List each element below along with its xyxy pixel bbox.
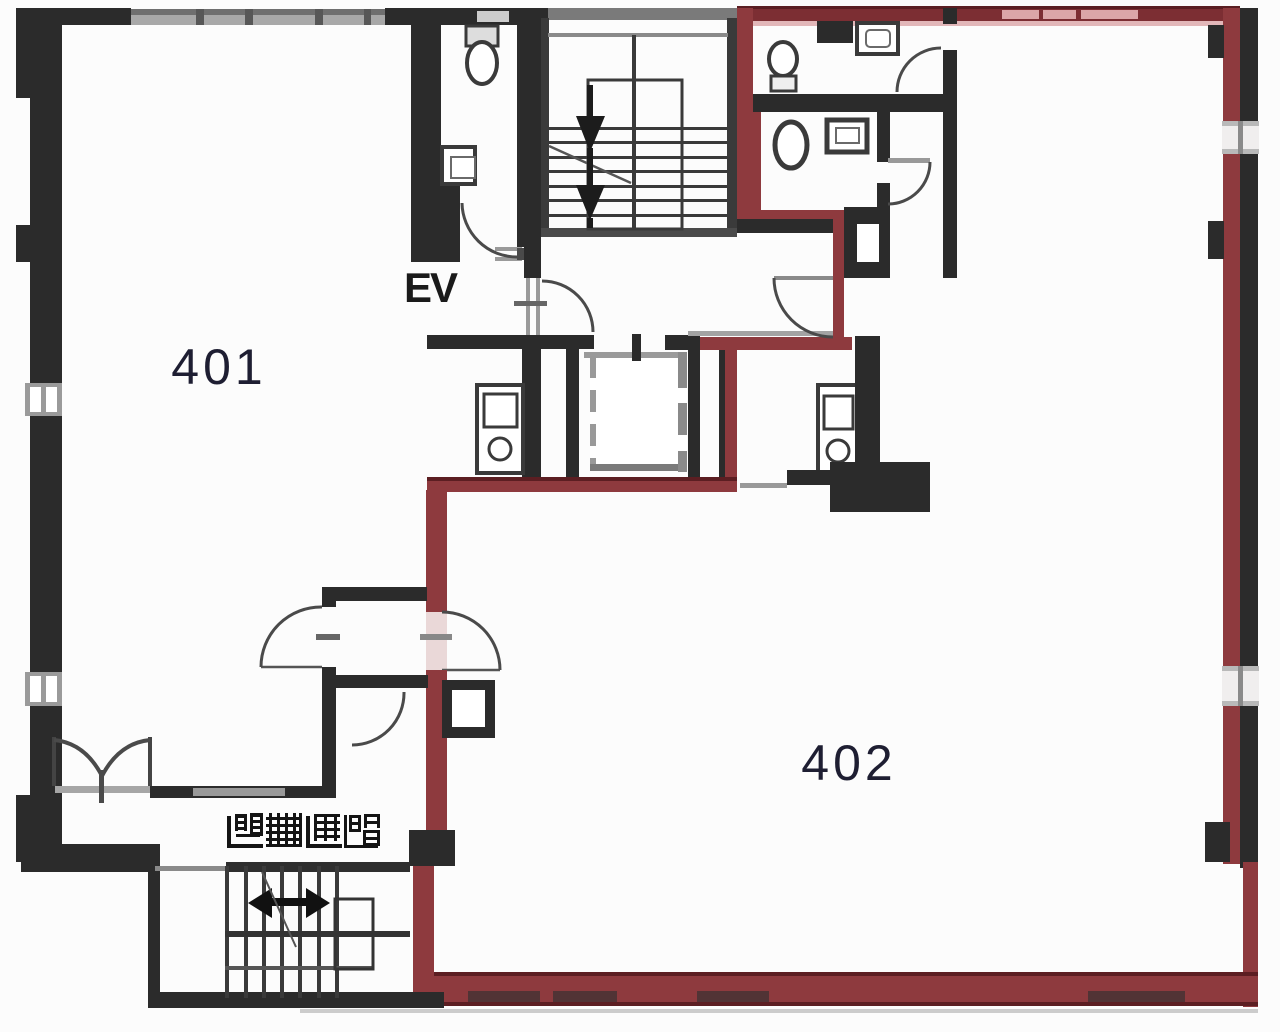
svg-text:402: 402 <box>801 735 896 791</box>
svg-text:EV: EV <box>404 264 458 311</box>
svg-text:401: 401 <box>171 339 266 395</box>
